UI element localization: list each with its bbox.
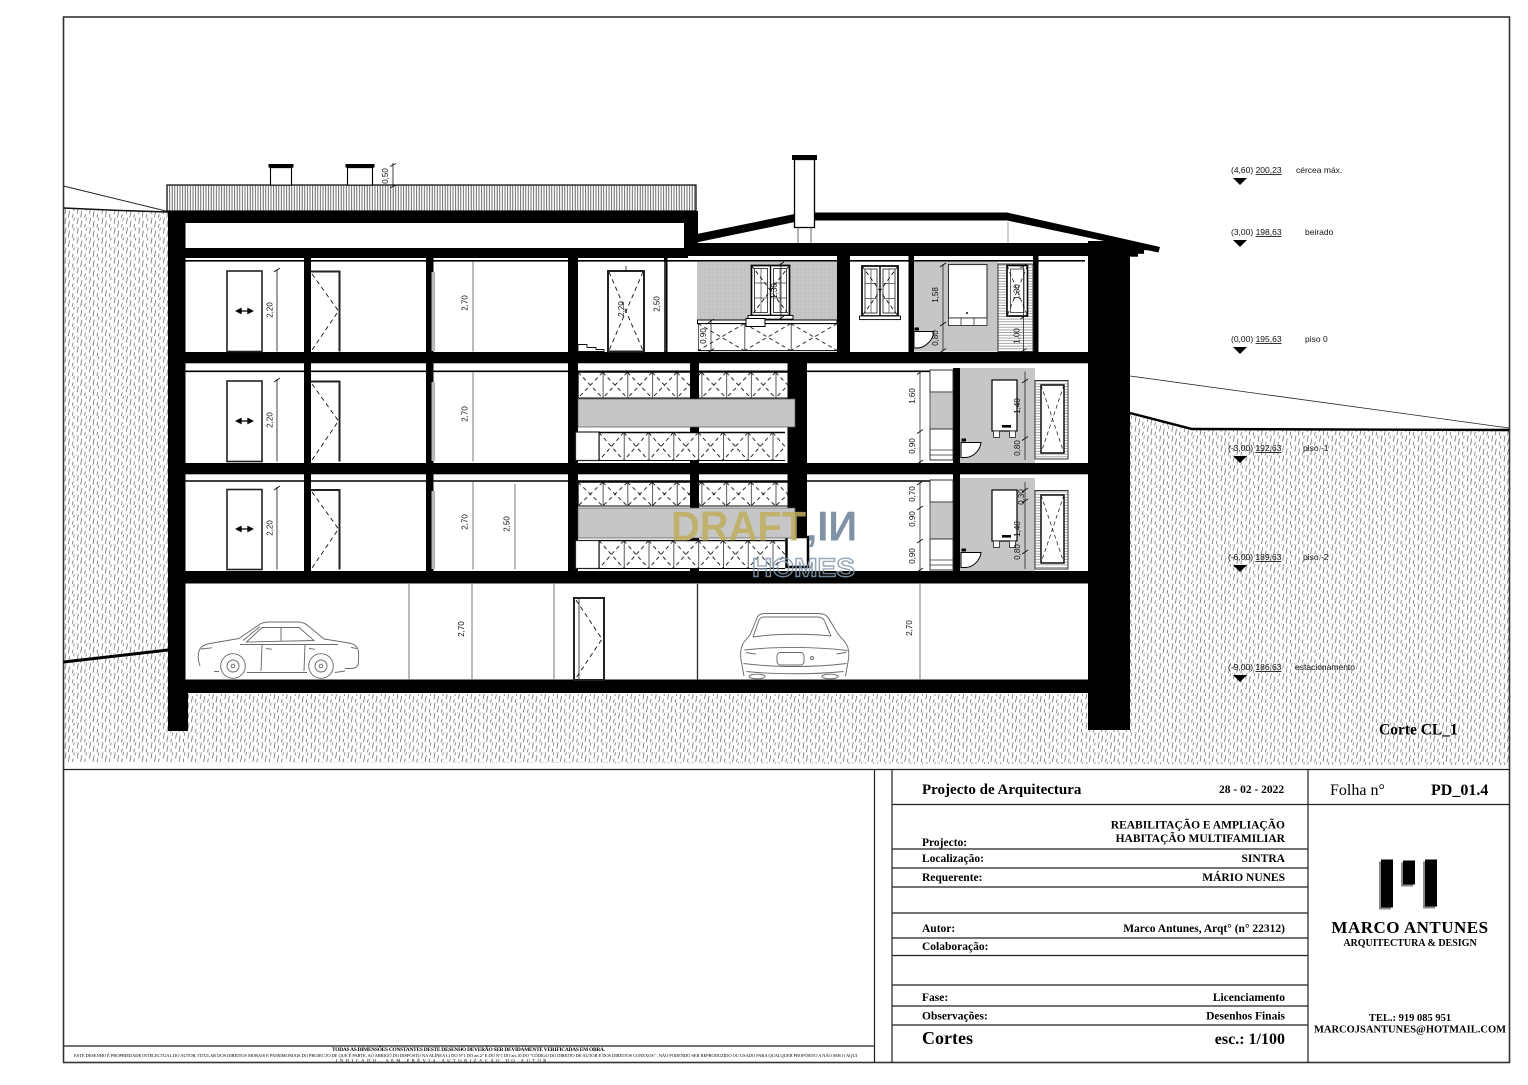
svg-text:piso 0: piso 0 [1305,334,1328,344]
svg-text:1,40: 1,40 [1013,521,1022,537]
svg-text:0,90: 0,90 [908,438,917,454]
svg-text:Colaboração:: Colaboração: [922,941,988,953]
svg-text:2,50: 2,50 [653,296,662,312]
svg-text:esc.: 1/100: esc.: 1/100 [1215,1031,1285,1048]
svg-text:HABITAÇÃO MULTIFAMILIAR: HABITAÇÃO MULTIFAMILIAR [1116,831,1286,845]
svg-text:piso -2: piso -2 [1303,552,1329,562]
svg-text:1,60: 1,60 [908,388,917,404]
svg-text:MARCOJSANTUNES@HOTMAIL.COM: MARCOJSANTUNES@HOTMAIL.COM [1314,1025,1506,1036]
svg-text:SINTRA: SINTRA [1242,853,1286,865]
svg-text:HOMES: HOMES [752,553,855,583]
svg-text:Requerente:: Requerente: [922,872,982,884]
svg-text:2,20: 2,20 [266,412,275,428]
svg-text:0,80: 0,80 [1013,440,1022,456]
svg-text:(4,60) 200,23: (4,60) 200,23 [1231,165,1282,175]
svg-text:0,90: 0,90 [699,328,708,344]
svg-text:Observações:: Observações: [922,1011,988,1023]
svg-text:2,20: 2,20 [266,520,275,536]
svg-text:Corte CL_1: Corte CL_1 [1379,722,1458,739]
svg-text:0,80: 0,80 [1013,544,1022,560]
svg-text:(-6,00) 189,63: (-6,00) 189,63 [1228,552,1282,562]
svg-text:0,70: 0,70 [908,486,917,502]
svg-text:ARQUITECTURA & DESIGN: ARQUITECTURA & DESIGN [1343,938,1477,949]
svg-text:(3,00) 198,63: (3,00) 198,63 [1231,227,1282,237]
svg-text:MÁRIO NUNES: MÁRIO NUNES [1202,870,1285,884]
svg-text:0,90: 0,90 [908,548,917,564]
svg-text:2,50: 2,50 [503,516,512,532]
svg-text:cércea máx.: cércea máx. [1296,165,1342,175]
svg-text:28 - 02 - 2022: 28 - 02 - 2022 [1219,784,1284,796]
svg-text:Licenciamento: Licenciamento [1213,992,1285,1004]
svg-text:1,30: 1,30 [770,283,779,299]
svg-text:1,30: 1,30 [1013,284,1022,300]
svg-text:TODAS AS DIMENSÕES CONSTANTES: TODAS AS DIMENSÕES CONSTANTES DESTE DESE… [332,1045,606,1053]
svg-text:PD_01.4: PD_01.4 [1431,782,1488,799]
svg-text:2,70: 2,70 [461,406,470,422]
svg-text:TEL.: 919 085 951: TEL.: 919 085 951 [1369,1013,1451,1024]
svg-text:0,80: 0,80 [931,330,940,346]
svg-text:Autor:: Autor: [922,923,955,935]
svg-text:0,30: 0,30 [1017,489,1026,505]
svg-text:Cortes: Cortes [922,1028,973,1048]
svg-text:2,70: 2,70 [457,621,466,637]
svg-text:(-9,00) 186,63: (-9,00) 186,63 [1228,662,1282,672]
svg-text:estacionamento: estacionamento [1295,662,1355,672]
svg-text:piso -1: piso -1 [1303,443,1329,453]
svg-text:0,90: 0,90 [908,511,917,527]
svg-text:(-3,00) 192,63: (-3,00) 192,63 [1228,443,1282,453]
svg-text:2,70: 2,70 [905,620,914,636]
svg-text:Fase:: Fase: [922,992,948,1004]
svg-text:2,20: 2,20 [266,302,275,318]
svg-text:2,20: 2,20 [617,301,626,317]
svg-text:1,58: 1,58 [931,287,940,303]
svg-text:2,70: 2,70 [461,514,470,530]
svg-text:REABILITAÇÃO E AMPLIAÇÃO: REABILITAÇÃO E AMPLIAÇÃO [1111,818,1285,832]
svg-text:1,40: 1,40 [1013,398,1022,414]
svg-text:MARCO ANTUNES: MARCO ANTUNES [1331,918,1488,937]
svg-text:2,70: 2,70 [461,295,470,311]
svg-text:beirado: beirado [1305,227,1334,237]
svg-text:Projecto:: Projecto: [922,837,967,849]
svg-text:Desenhos Finais: Desenhos Finais [1206,1011,1285,1023]
svg-text:0,50: 0,50 [381,168,390,184]
svg-text:Folha n°: Folha n° [1330,782,1385,799]
svg-text:Localização:: Localização: [922,853,984,865]
svg-text:Marco Antunes, Arqt° (n° 2231: Marco Antunes, Arqt° (n° 22312) [1123,923,1285,935]
svg-text:1,00: 1,00 [1013,328,1022,344]
svg-text:DRAFT‚IИ: DRAFT‚IИ [671,503,857,550]
svg-text:Projecto de Arquitectura: Projecto de Arquitectura [922,782,1082,798]
svg-text:(0,00) 195,63: (0,00) 195,63 [1231,334,1282,344]
